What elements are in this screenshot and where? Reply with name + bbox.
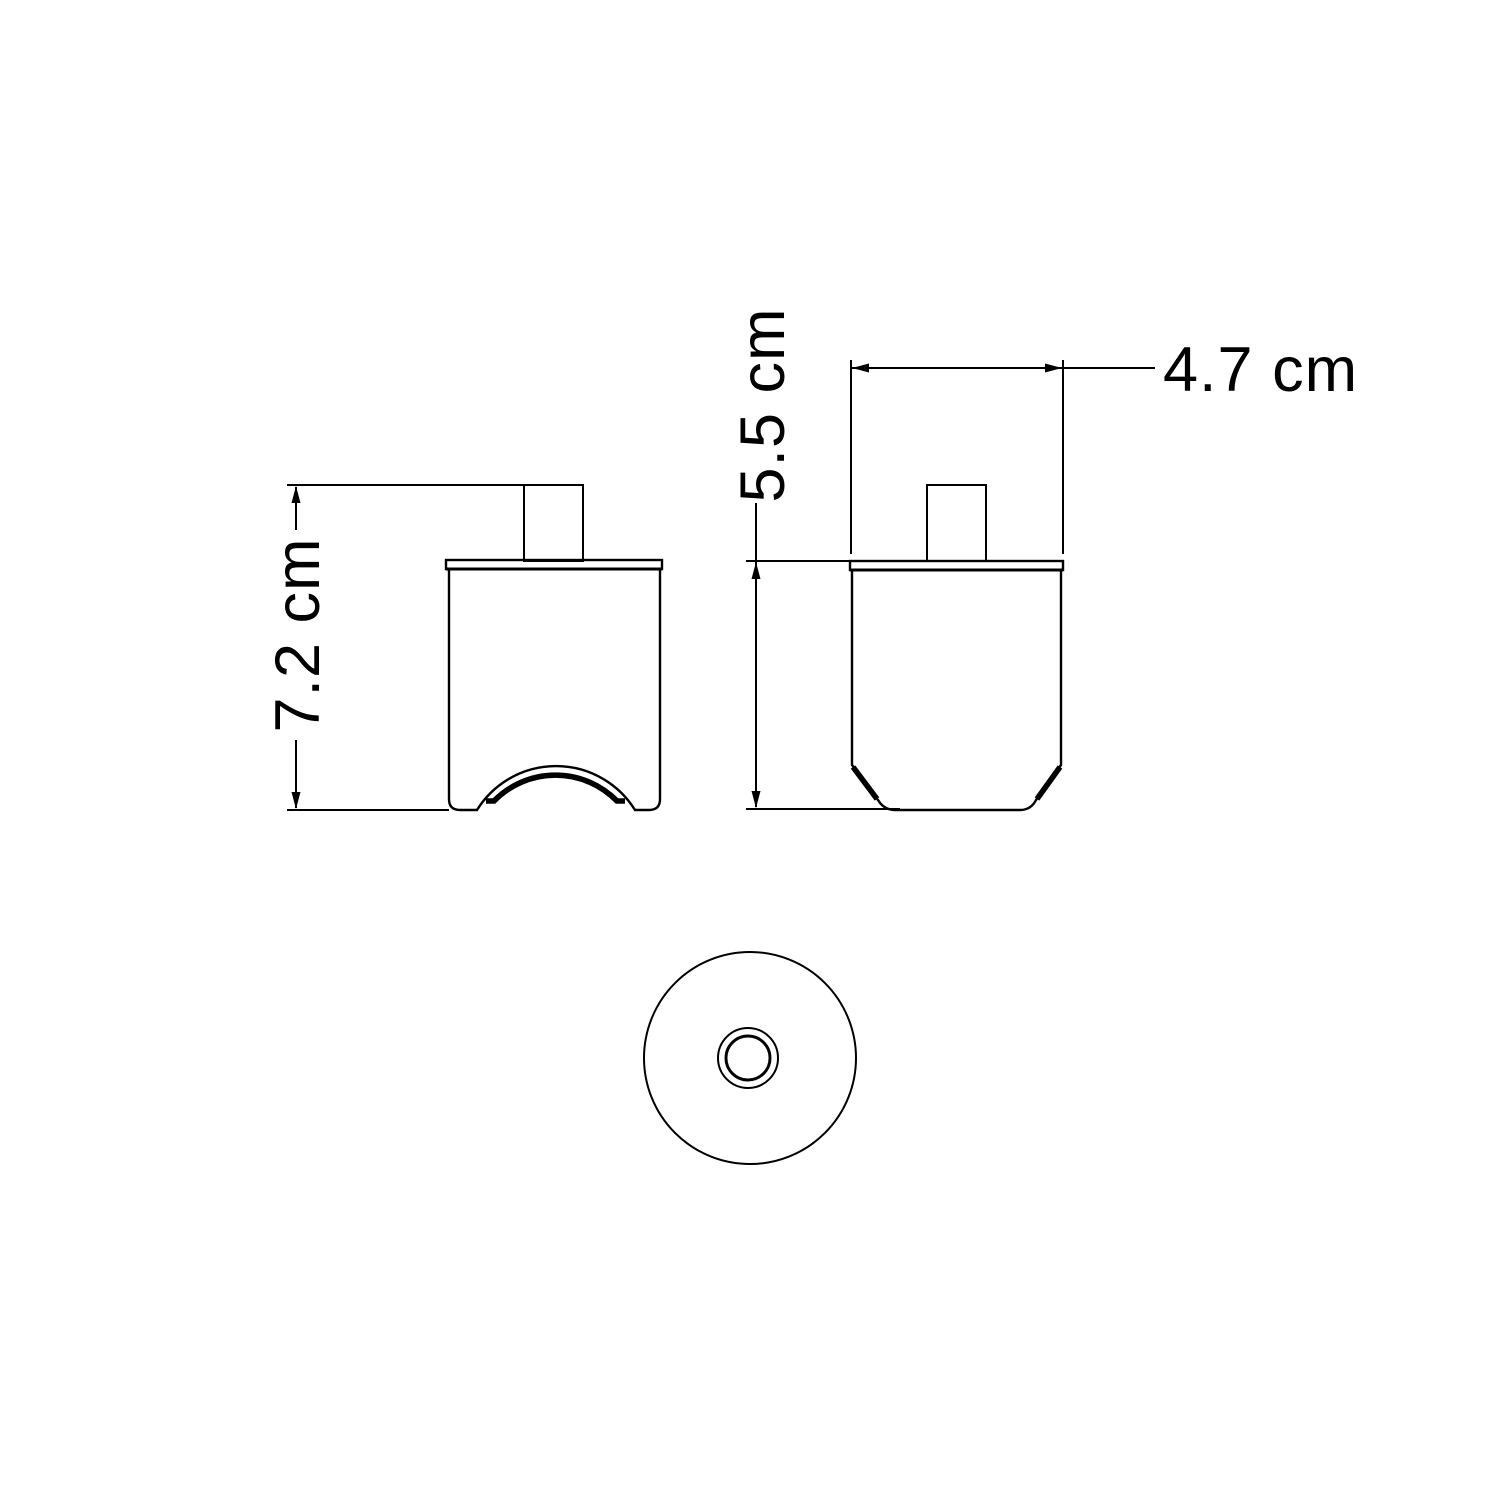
dim-label-body-height: 5.5 cm	[728, 307, 798, 502]
arrowhead-down	[752, 791, 761, 808]
side-chamfer-left	[853, 767, 877, 799]
arrowhead-up	[292, 486, 301, 503]
side-view	[850, 485, 1063, 810]
drawing-svg: 7.2 cm 5.5 cm 4.7 cm	[0, 0, 1500, 1500]
dimension-body-height: 5.5 cm	[728, 307, 900, 809]
dim-label-total-height: 7.2 cm	[263, 537, 333, 732]
side-chamfer-right	[1037, 767, 1060, 799]
bottom-view	[644, 952, 856, 1164]
arrowhead-up	[752, 562, 761, 579]
arrowhead-left	[852, 364, 869, 373]
dim-label-body-width: 4.7 cm	[1163, 335, 1358, 405]
technical-drawing-canvas: 7.2 cm 5.5 cm 4.7 cm	[0, 0, 1500, 1500]
dimension-total-height: 7.2 cm	[263, 485, 524, 810]
bottom-hole-inner-circle	[726, 1036, 770, 1080]
side-stem	[927, 485, 986, 561]
side-body-outline	[852, 571, 1061, 810]
bottom-outer-circle	[644, 952, 856, 1164]
front-stem	[524, 485, 583, 561]
arrowhead-down	[292, 792, 301, 809]
arrowhead-right	[1045, 364, 1062, 373]
front-view	[446, 485, 662, 810]
